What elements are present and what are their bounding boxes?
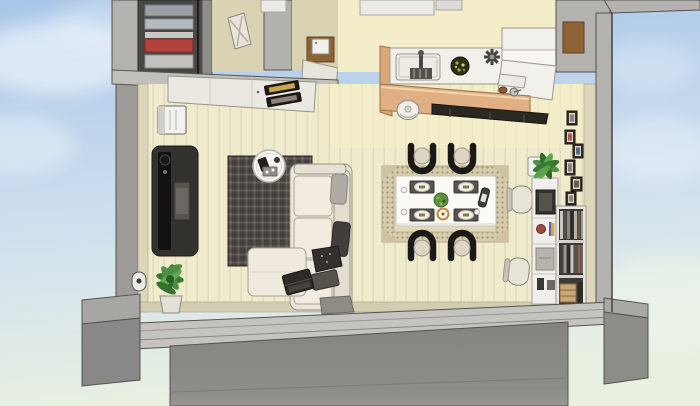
place-setting [410, 209, 434, 221]
clothes-pile [145, 19, 193, 29]
island-sink [396, 50, 440, 80]
wood-item [499, 87, 507, 93]
picture-frame [573, 144, 583, 158]
desk-chair [507, 186, 532, 213]
right-wall-cut-top [596, 13, 612, 312]
top-cabinet [436, 0, 462, 10]
bowl [274, 157, 280, 163]
cup [271, 168, 275, 172]
tv-screen-edge [158, 152, 171, 250]
small-item [547, 280, 555, 290]
shelf-board [558, 240, 584, 243]
wicker-basket [560, 284, 576, 302]
small-appliance [312, 39, 329, 54]
wall-mounted-ac [158, 106, 186, 134]
appliance-cabinet [307, 37, 334, 62]
dish-rack [410, 68, 432, 79]
place-setting [410, 181, 434, 193]
star-faucet [484, 49, 500, 65]
salad-centerpiece [434, 193, 448, 207]
cup [265, 170, 269, 174]
picture-frame [567, 111, 577, 125]
seat-cushion [294, 176, 332, 216]
cup [401, 209, 407, 215]
counter-stool [397, 101, 419, 120]
cup [475, 210, 480, 215]
clothes-red [145, 39, 193, 52]
closet-shelf [145, 32, 193, 38]
picture-frame [565, 130, 575, 144]
shelf-board [558, 275, 584, 278]
wall-cabinet-top [261, 0, 286, 12]
place-setting [454, 181, 478, 193]
desk-chair [503, 257, 531, 286]
desk-hutch-cabinet [532, 178, 558, 304]
gray-box [536, 248, 554, 270]
clothes-pile [145, 5, 193, 16]
closet-wall [202, 0, 212, 76]
bookshelf [556, 206, 586, 308]
book [549, 222, 552, 236]
pillow-gray [330, 173, 348, 204]
picture-frame [565, 160, 575, 175]
foundation-block-right [604, 298, 648, 384]
plant-pot [160, 296, 182, 313]
dining-table [396, 176, 496, 226]
closet-with-clothes [138, 0, 204, 76]
tv-sideboard [152, 146, 198, 256]
refrigerator [563, 22, 584, 53]
picture-frame [571, 177, 582, 191]
foundation-block-left [82, 294, 140, 386]
render-canvas [0, 0, 700, 406]
ottoman [248, 248, 314, 296]
speaker [160, 155, 170, 165]
door-mat [320, 296, 354, 314]
round-coffee-table [253, 150, 285, 182]
picture-frame [566, 192, 576, 205]
cloud [600, 40, 696, 92]
sofa-armrest [294, 164, 346, 174]
counter-inset [498, 74, 526, 88]
book [552, 223, 555, 236]
clothes-pile [145, 55, 193, 68]
round-badge [537, 225, 546, 234]
cup [401, 187, 407, 193]
book [578, 282, 583, 304]
small-item [537, 278, 544, 290]
salad-bowl [451, 57, 469, 75]
top-cabinet [360, 0, 434, 15]
